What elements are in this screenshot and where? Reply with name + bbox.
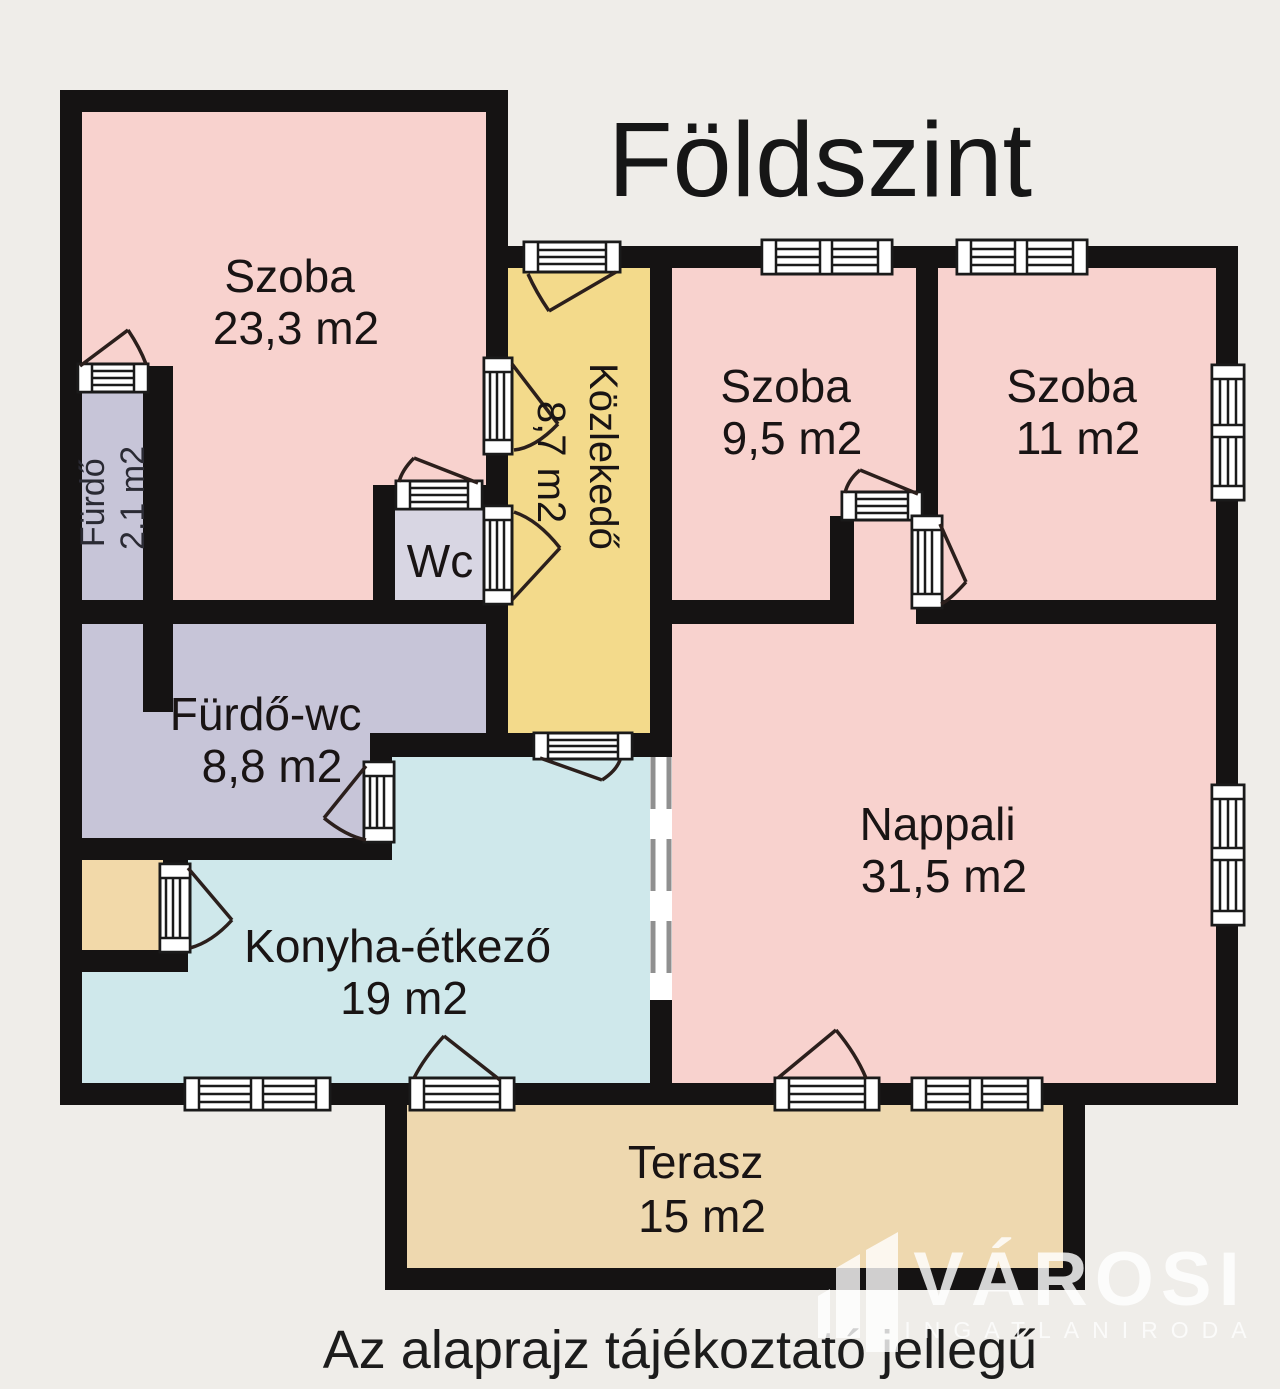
window-konyha-bottom [185, 1078, 330, 1110]
agency-logo-name: VÁROSI [913, 1237, 1246, 1322]
agency-logo-subtitle: INGATLANIRODA [904, 1317, 1259, 1343]
label-szoba3: Szoba 11 m2 [1006, 360, 1149, 464]
page-title: Földszint [608, 101, 1032, 219]
floorplan-canvas: Földszint Szoba 23,3 m2 Közlekedő 8,7 m2… [0, 0, 1280, 1389]
window-szoba3-right [1212, 365, 1244, 500]
label-wc: Wc [407, 535, 473, 587]
label-szoba1: Szoba 23,3 m2 [213, 250, 379, 354]
window-nappali-right [1212, 785, 1244, 925]
konyha-nappali-opening [650, 757, 672, 1000]
agency-logo: VÁROSI INGATLANIRODA [818, 1232, 1260, 1352]
room-konyha-fill-c [82, 972, 188, 1083]
window-szoba3-top [957, 240, 1087, 274]
alcove-fill [82, 860, 163, 950]
label-nappali: Nappali 31,5 m2 [860, 798, 1029, 902]
label-szoba2: Szoba 9,5 m2 [720, 360, 863, 464]
window-szoba2-top [762, 240, 892, 274]
window-nappali-bottom [912, 1078, 1042, 1110]
